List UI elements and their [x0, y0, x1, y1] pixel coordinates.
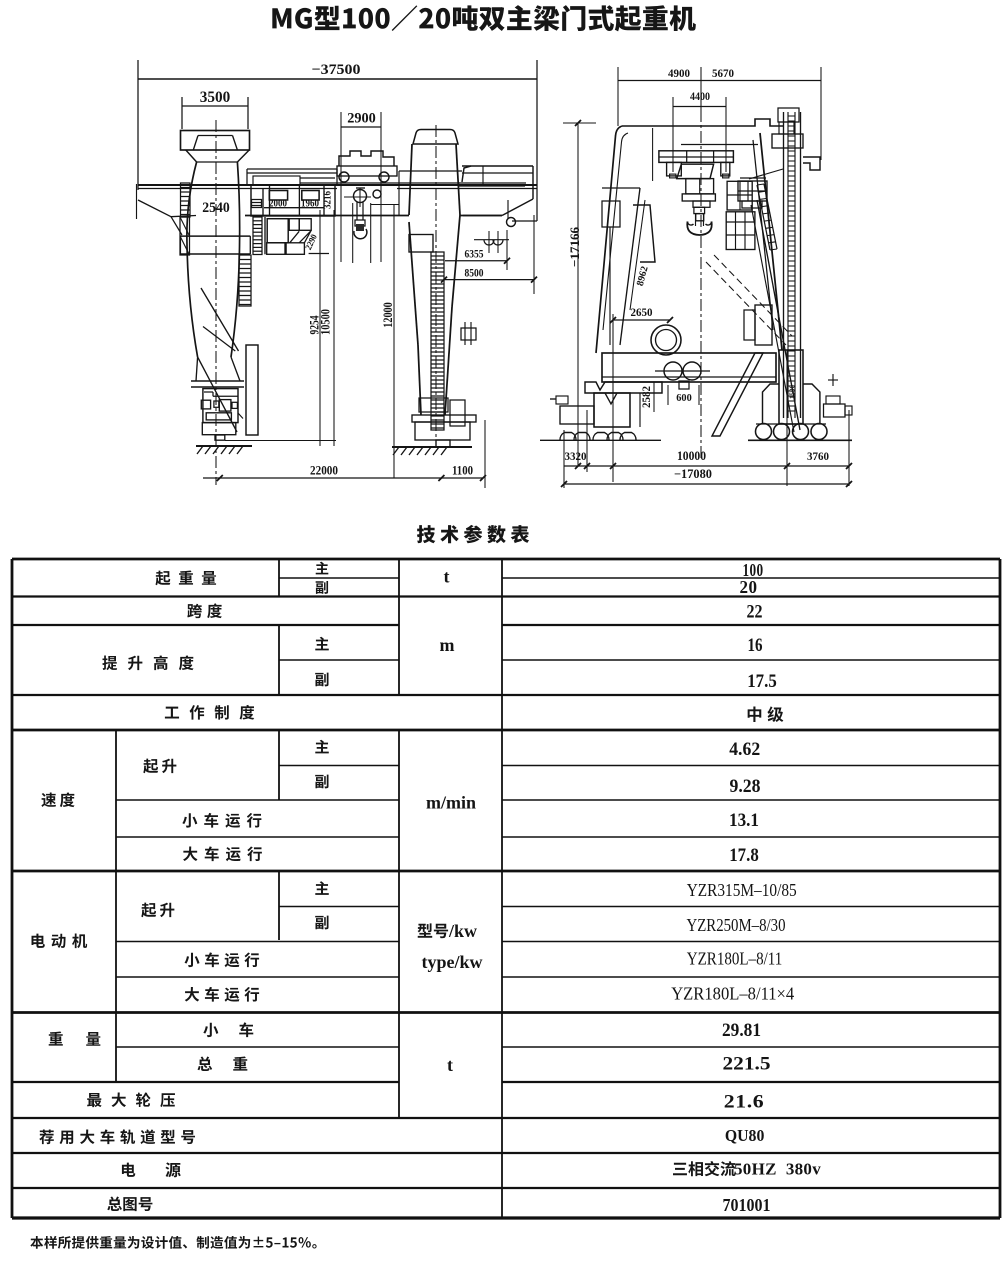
- svg-text:701001: 701001: [723, 1195, 771, 1215]
- svg-text:13.1: 13.1: [729, 811, 759, 831]
- svg-text:9.28: 9.28: [730, 777, 761, 797]
- svg-text:t: t: [447, 1055, 453, 1075]
- svg-text:−17166: −17166: [567, 227, 582, 267]
- svg-text:YZR315M–10/85: YZR315M–10/85: [687, 880, 797, 900]
- svg-text:50HZ 380v: 50HZ 380v: [734, 1160, 821, 1179]
- svg-text:12000: 12000: [380, 302, 395, 328]
- svg-text:4400: 4400: [690, 89, 710, 103]
- svg-text:−17080: −17080: [674, 467, 712, 481]
- svg-text:3320: 3320: [565, 449, 587, 463]
- svg-text:22: 22: [747, 603, 763, 623]
- svg-text:/kw: /kw: [448, 921, 477, 941]
- svg-text:10500: 10500: [317, 309, 332, 335]
- svg-text:type/kw: type/kw: [421, 952, 482, 972]
- svg-text:YZR180L–8/11×4: YZR180L–8/11×4: [671, 983, 794, 1003]
- svg-text:6355: 6355: [465, 248, 484, 260]
- svg-text:2900: 2900: [347, 110, 376, 126]
- svg-text:2000: 2000: [269, 198, 287, 210]
- svg-text:17.5: 17.5: [747, 672, 777, 692]
- svg-text:4900: 4900: [668, 66, 690, 80]
- svg-text:1500: 1500: [788, 385, 797, 399]
- svg-text:3500: 3500: [200, 89, 231, 106]
- svg-text:m/min: m/min: [426, 792, 476, 812]
- svg-text:1960: 1960: [301, 198, 319, 210]
- svg-text:29.81: 29.81: [722, 1021, 761, 1041]
- svg-text:2582: 2582: [641, 386, 653, 408]
- svg-text:20: 20: [740, 577, 758, 597]
- svg-text:5670: 5670: [712, 66, 734, 80]
- svg-text:8500: 8500: [465, 267, 484, 279]
- svg-text:QU80: QU80: [725, 1126, 765, 1145]
- svg-text:221.5: 221.5: [723, 1055, 771, 1075]
- svg-text:t: t: [444, 566, 450, 586]
- svg-text:21.6: 21.6: [724, 1093, 765, 1113]
- svg-text:2540: 2540: [202, 200, 230, 216]
- svg-text:16: 16: [748, 636, 763, 656]
- svg-text:−37500: −37500: [312, 62, 361, 78]
- svg-text:2650: 2650: [631, 307, 653, 319]
- svg-text:m: m: [440, 635, 455, 655]
- svg-text:3216: 3216: [322, 191, 334, 209]
- svg-text:22000: 22000: [310, 464, 338, 478]
- svg-text:4.62: 4.62: [729, 740, 760, 760]
- svg-text:1100: 1100: [452, 464, 473, 478]
- svg-text:600: 600: [676, 392, 692, 404]
- svg-text:YZR180L–8/11: YZR180L–8/11: [687, 948, 783, 968]
- svg-text:YZR250M–8/30: YZR250M–8/30: [687, 915, 786, 935]
- svg-text:3760: 3760: [807, 449, 829, 463]
- svg-text:10000: 10000: [677, 449, 706, 463]
- svg-text:17.8: 17.8: [729, 846, 759, 866]
